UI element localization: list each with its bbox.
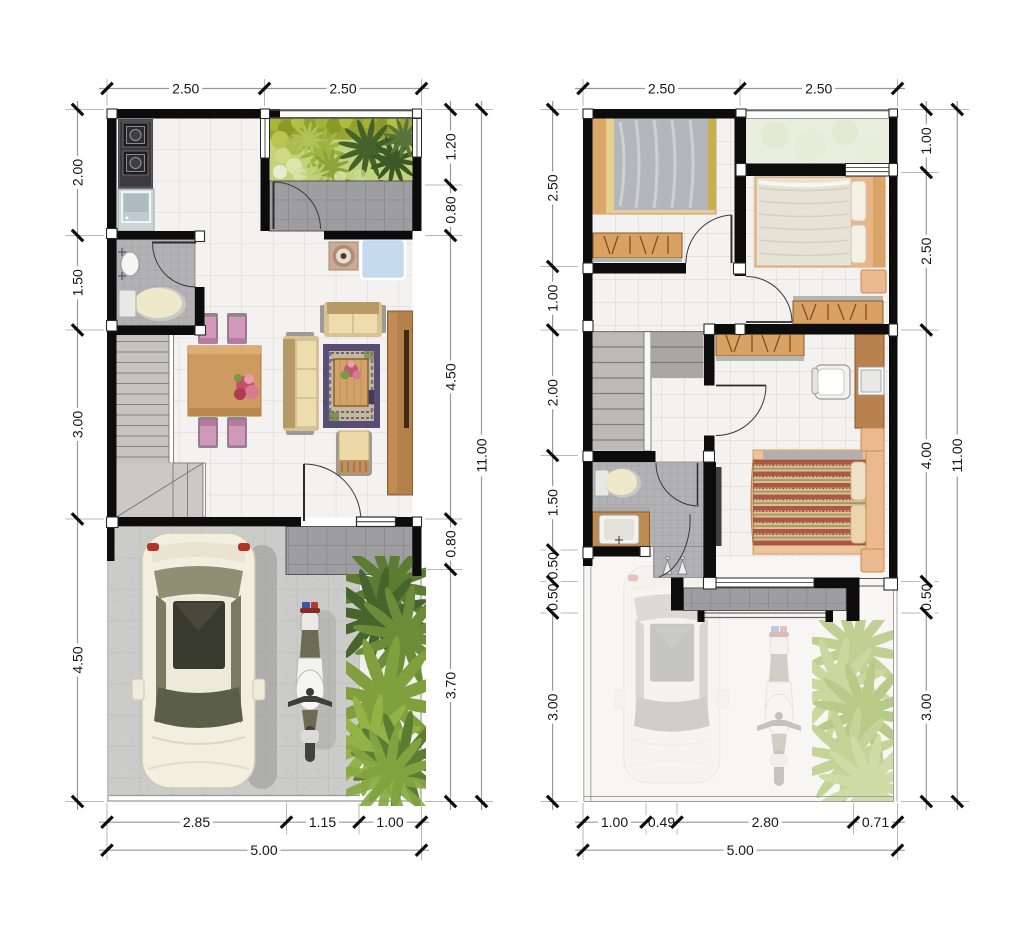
svg-text:1.00: 1.00 — [918, 127, 934, 154]
svg-text:5.00: 5.00 — [250, 842, 277, 858]
svg-text:2.50: 2.50 — [918, 237, 934, 264]
svg-text:3.00: 3.00 — [544, 693, 560, 720]
svg-text:2.00: 2.00 — [69, 159, 85, 186]
svg-text:1.00: 1.00 — [376, 814, 403, 830]
svg-text:0.80: 0.80 — [442, 196, 458, 223]
svg-text:3.70: 3.70 — [442, 672, 458, 699]
svg-text:11.00: 11.00 — [473, 438, 489, 472]
svg-text:2.50: 2.50 — [805, 80, 832, 96]
svg-text:3.00: 3.00 — [69, 411, 85, 438]
svg-text:4.00: 4.00 — [918, 442, 934, 469]
svg-text:1.00: 1.00 — [544, 284, 560, 311]
svg-text:0.71: 0.71 — [862, 814, 889, 830]
svg-text:1.50: 1.50 — [69, 269, 85, 296]
svg-text:0.80: 0.80 — [442, 530, 458, 557]
svg-text:2.50: 2.50 — [329, 80, 356, 96]
svg-text:11.00: 11.00 — [949, 438, 965, 472]
svg-text:4.50: 4.50 — [69, 646, 85, 673]
svg-text:2.50: 2.50 — [544, 174, 560, 201]
svg-text:3.00: 3.00 — [918, 693, 934, 720]
svg-text:1.20: 1.20 — [442, 133, 458, 160]
svg-text:1.00: 1.00 — [601, 814, 628, 830]
svg-text:4.50: 4.50 — [442, 363, 458, 390]
svg-text:1.15: 1.15 — [309, 814, 336, 830]
svg-text:2.85: 2.85 — [183, 814, 210, 830]
svg-text:1.50: 1.50 — [544, 489, 560, 516]
svg-text:2.50: 2.50 — [172, 80, 199, 96]
svg-text:2.00: 2.00 — [544, 379, 560, 406]
svg-text:2.80: 2.80 — [752, 814, 779, 830]
svg-text:5.00: 5.00 — [727, 842, 754, 858]
svg-text:2.50: 2.50 — [648, 80, 675, 96]
